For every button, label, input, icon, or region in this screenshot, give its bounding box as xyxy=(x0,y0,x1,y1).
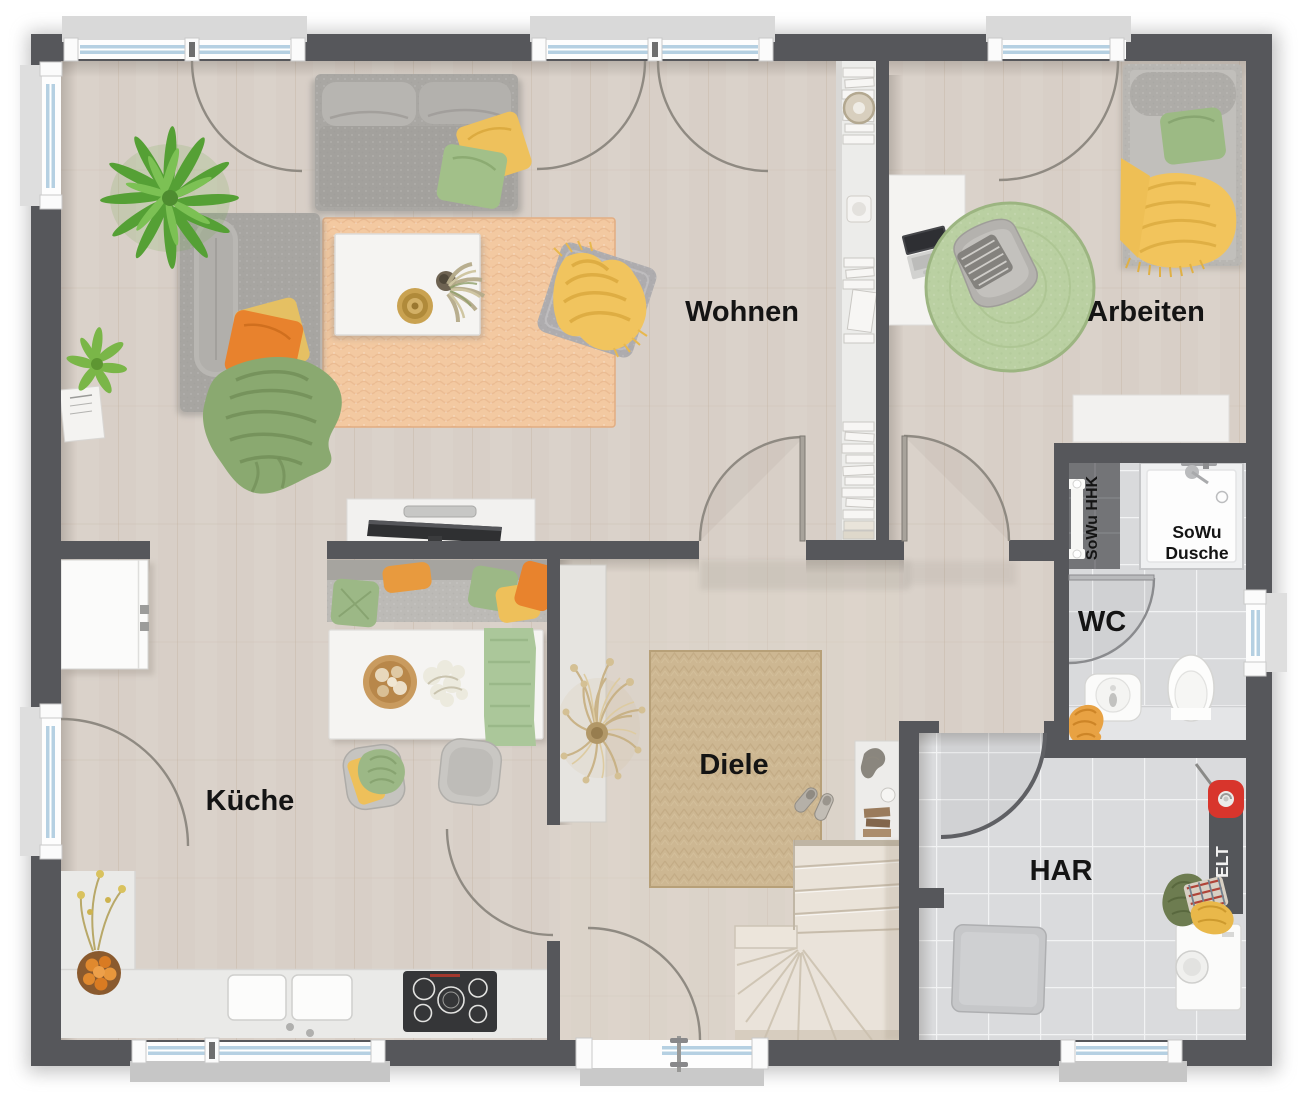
svg-text:Wohnen: Wohnen xyxy=(685,296,799,328)
svg-text:SoWu HHK: SoWu HHK xyxy=(1084,475,1101,560)
svg-text:SoWu: SoWu xyxy=(1172,522,1221,542)
svg-text:Diele: Diele xyxy=(699,749,768,781)
svg-text:ELT: ELT xyxy=(1212,846,1232,878)
svg-text:WC: WC xyxy=(1078,606,1126,638)
svg-text:Arbeiten: Arbeiten xyxy=(1087,296,1205,328)
svg-text:Küche: Küche xyxy=(206,785,295,817)
svg-text:HAR: HAR xyxy=(1030,855,1093,887)
svg-text:Dusche: Dusche xyxy=(1165,543,1228,563)
